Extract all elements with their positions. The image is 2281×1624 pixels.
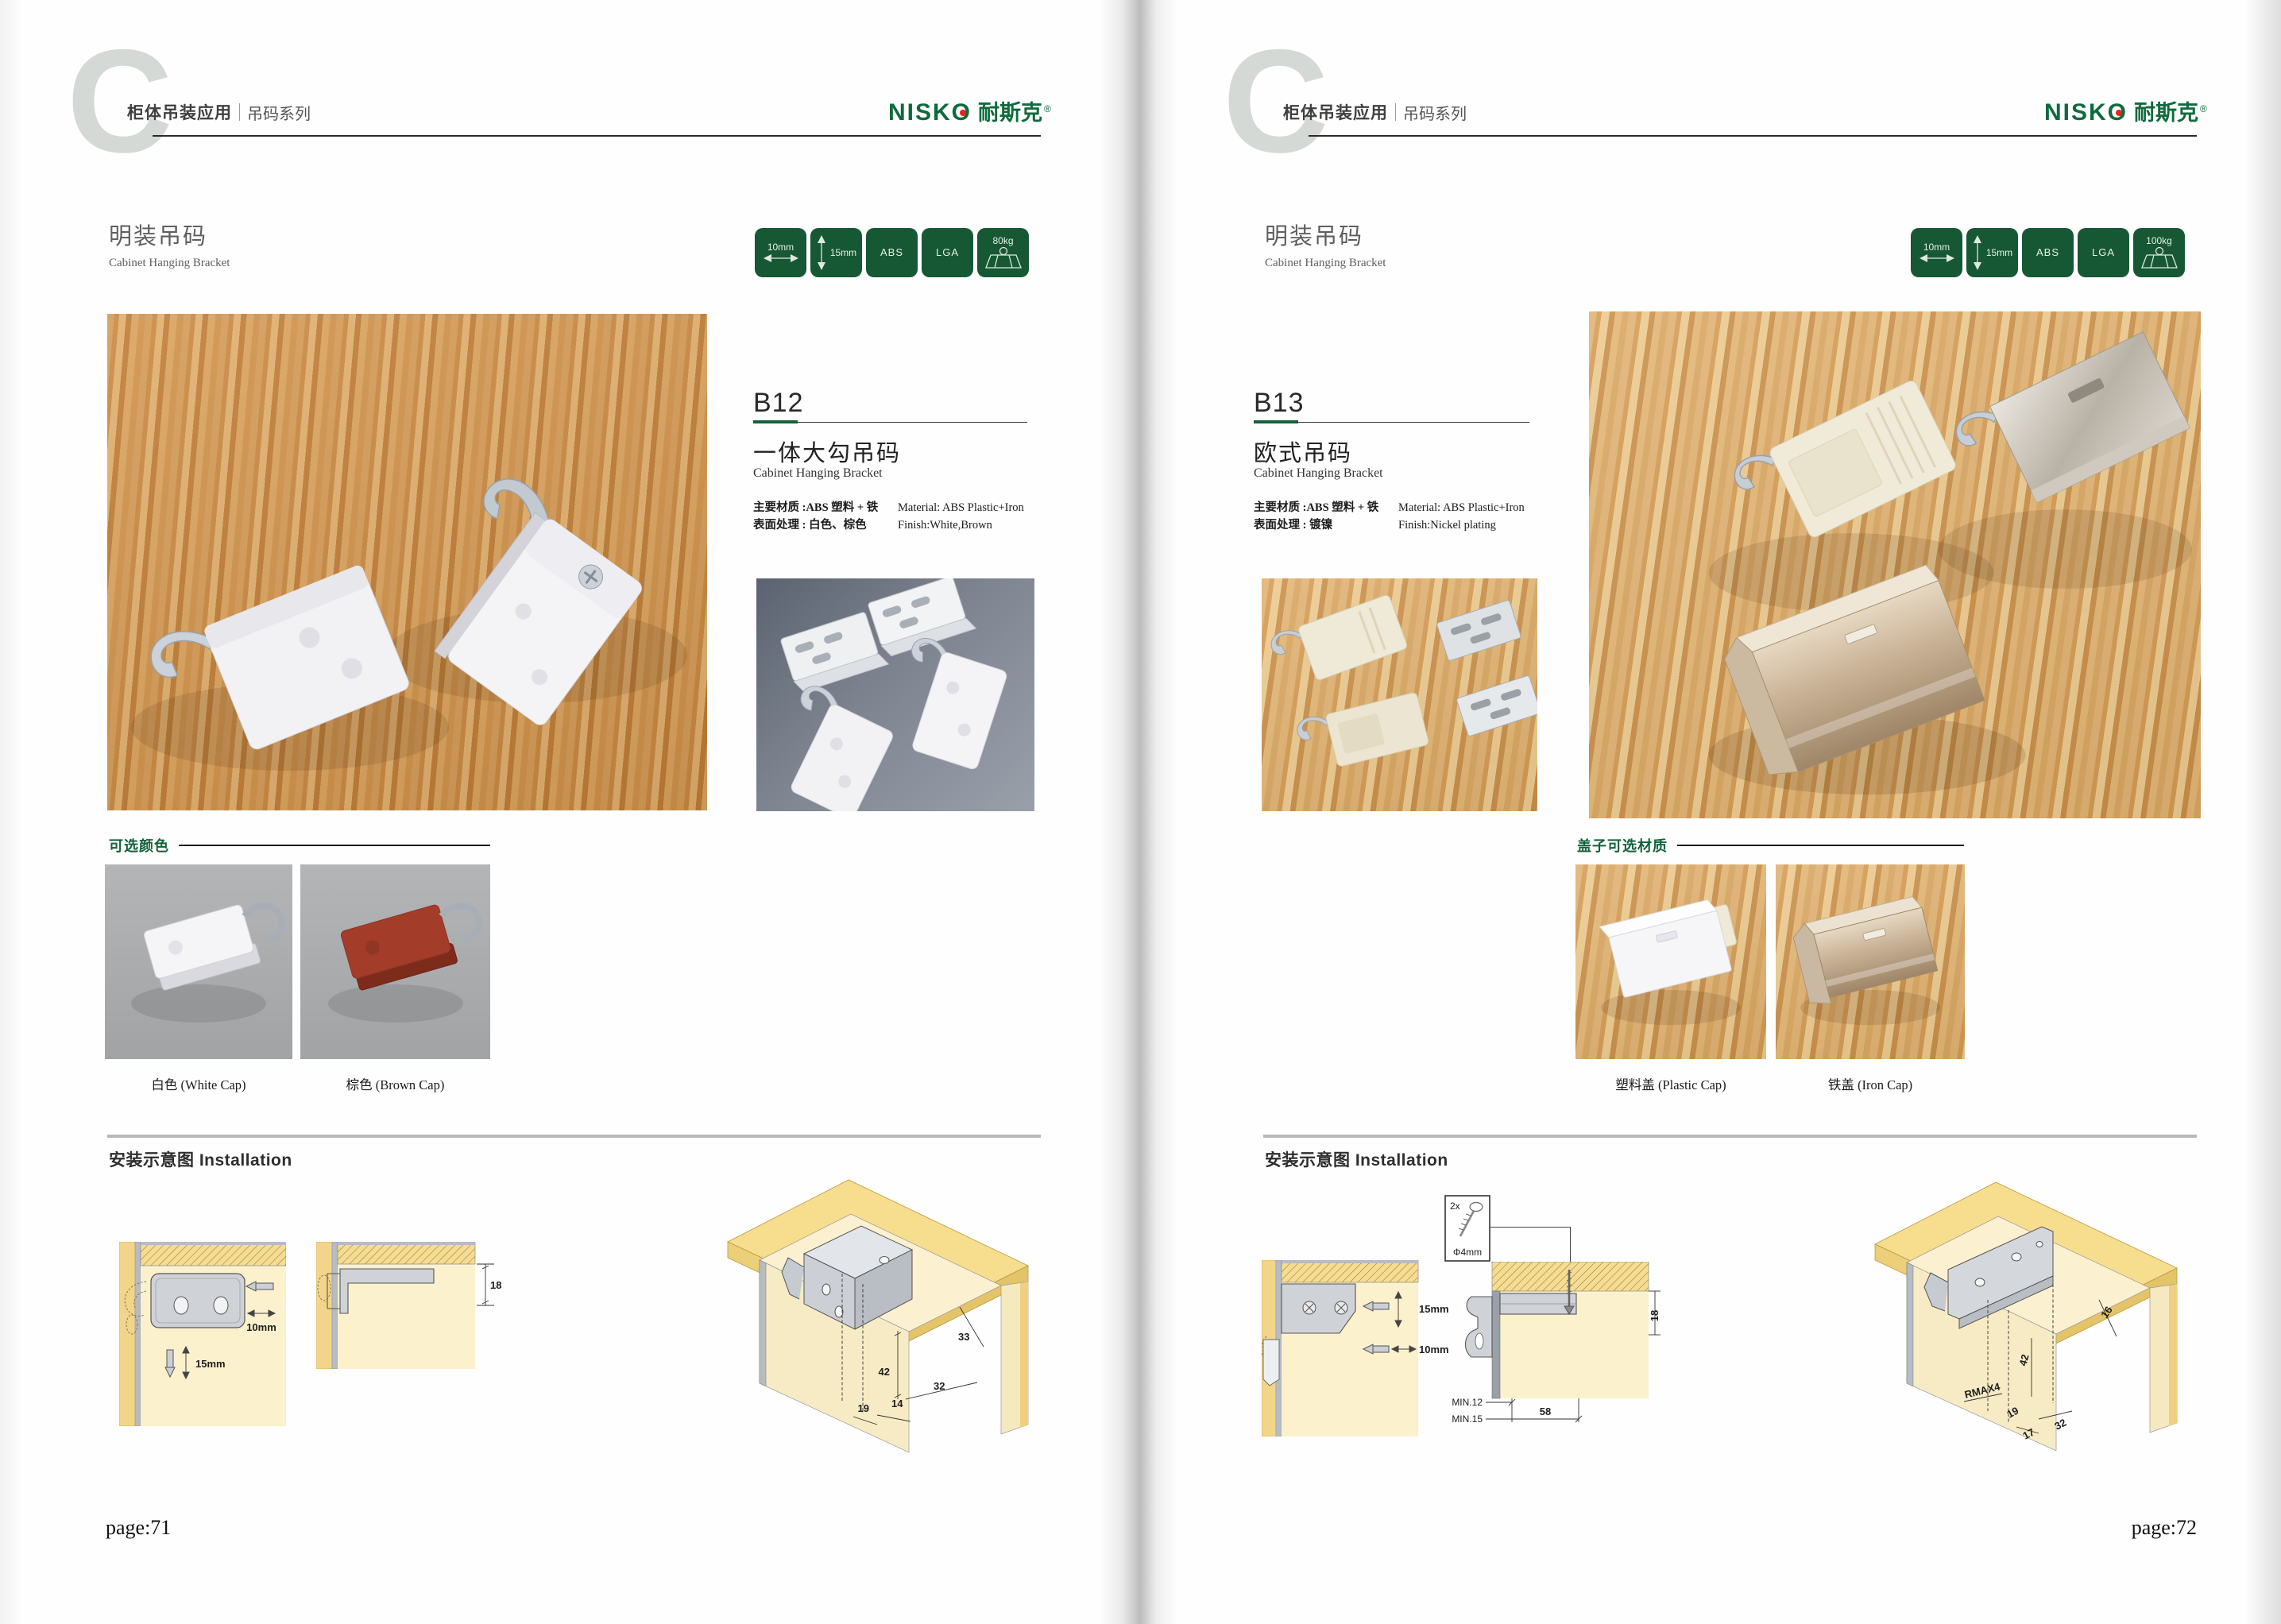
spec-material-en: Material: ABS Plastic+Iron <box>898 499 1041 516</box>
product-code: B12 <box>753 388 804 419</box>
height-arrow-icon <box>816 234 827 271</box>
width-arrow-icon <box>1919 253 1955 264</box>
option-caption: 塑料盖 (Plastic Cap) <box>1575 1074 1766 1093</box>
material-option-photo-plastic <box>1575 864 1766 1059</box>
bracket-illustration <box>1589 311 2201 818</box>
height-arrow-icon <box>1972 234 1983 271</box>
svg-text:18: 18 <box>1649 1310 1660 1321</box>
options-rule <box>1677 845 1964 846</box>
option-caption: 棕色 (Brown Cap) <box>300 1074 490 1093</box>
svg-text:42: 42 <box>879 1366 890 1378</box>
section-title-cn: 明装吊码 <box>109 218 230 251</box>
install-diagram-perspective: 42 33 32 14 19 <box>721 1178 1031 1462</box>
color-option-photo-brown <box>300 864 490 1059</box>
options-label: 盖子可选材质 <box>1577 835 1668 856</box>
badge-width: 10mm <box>755 228 806 277</box>
brand-logo-cn: 耐斯克 <box>2134 95 2198 126</box>
color-option-photo-white <box>105 864 292 1059</box>
header-title: 柜体吊装应用 <box>127 100 232 124</box>
options-rule <box>179 845 490 846</box>
product-photo-detail <box>1262 578 1537 811</box>
svg-text:MIN.15: MIN.15 <box>1452 1413 1483 1425</box>
options-label: 可选颜色 <box>109 835 169 856</box>
brand-logo-en: NISKO <box>888 99 972 126</box>
registered-mark: ® <box>1044 103 1051 114</box>
page-header: 柜体吊装应用 吊码系列 <box>127 102 311 122</box>
spec-badges: 10mm 15mm ABS LGA 100kg <box>1911 228 2185 277</box>
page-edge-shadow <box>2245 0 2281 1624</box>
svg-text:MIN.12: MIN.12 <box>1452 1397 1483 1408</box>
header-rule <box>153 135 1041 137</box>
page-number: page:71 <box>106 1516 171 1540</box>
product-name-cn: 欧式吊码 <box>1254 435 1352 468</box>
badge-height: 15mm <box>810 228 862 277</box>
product-code-accent <box>753 420 798 423</box>
install-diagram-front: 10mm 15mm <box>119 1242 286 1430</box>
option-caption: 白色 (White Cap) <box>105 1074 292 1093</box>
svg-text:15mm: 15mm <box>195 1358 226 1370</box>
svg-text:2x: 2x <box>1450 1201 1460 1212</box>
header-divider <box>1395 103 1396 121</box>
installation-label: 安装示意图 Installation <box>1265 1147 1448 1171</box>
svg-text:18: 18 <box>490 1279 501 1291</box>
spec-finish-cn: 表面处理 : 镀镍 <box>1254 516 1398 534</box>
material-option-photo-iron <box>1776 864 1965 1059</box>
badge-load: 100kg <box>2133 228 2185 277</box>
product-photo-detail <box>756 578 1034 811</box>
section-title-cn: 明装吊码 <box>1265 218 1386 251</box>
badge-load: 80kg <box>977 228 1029 277</box>
screw-spec-box: 2x Φ4mm <box>1444 1195 1490 1266</box>
product-name-en: Cabinet Hanging Bracket <box>753 466 883 481</box>
brand-logo: NISKO 耐斯克 ® <box>2044 95 2207 126</box>
book-fold-shadow <box>1099 0 1178 1624</box>
svg-text:14: 14 <box>891 1398 903 1409</box>
header-rule <box>1309 135 2197 137</box>
badge-lga: LGA <box>922 228 973 277</box>
badge-material: ABS <box>2022 228 2074 277</box>
install-diagram-side: 18 MIN.12 MIN.15 58 <box>1422 1262 1664 1434</box>
installation-rule <box>107 1135 1041 1138</box>
product-photo-main <box>107 314 707 810</box>
badge-material: ABS <box>866 228 918 277</box>
page-header: 柜体吊装应用 吊码系列 <box>1283 102 1467 122</box>
badge-width: 10mm <box>1911 228 1962 277</box>
options-header: 可选颜色 <box>109 835 490 856</box>
svg-text:Φ4mm: Φ4mm <box>1453 1247 1482 1258</box>
bracket-illustration <box>107 314 707 810</box>
bracket-parts-illustration <box>756 578 1034 811</box>
product-name-cn: 一体大勾吊码 <box>753 435 901 468</box>
width-arrow-icon <box>763 253 799 264</box>
installation-rule <box>1263 1135 2197 1138</box>
svg-text:19: 19 <box>858 1402 869 1414</box>
options-header: 盖子可选材质 <box>1577 835 1964 856</box>
page-edge-shadow <box>0 0 22 1624</box>
header-series: 吊码系列 <box>247 101 311 124</box>
brand-logo-en: NISKO <box>2044 99 2128 126</box>
header-series: 吊码系列 <box>1403 101 1467 124</box>
spec-material-en: Material: ABS Plastic+Iron <box>1398 499 1548 516</box>
bracket-parts-illustration <box>1262 578 1537 811</box>
spec-finish-en: Finish:White,Brown <box>898 516 1041 534</box>
section-title: 明装吊码 Cabinet Hanging Bracket <box>1265 218 1386 270</box>
header-title: 柜体吊装应用 <box>1283 100 1388 124</box>
load-icon <box>985 246 1022 270</box>
svg-text:32: 32 <box>934 1380 945 1392</box>
section-title-en: Cabinet Hanging Bracket <box>109 257 230 270</box>
badge-lga: LGA <box>2078 228 2129 277</box>
product-code-accent <box>1254 420 1298 423</box>
install-diagram-perspective: 16 42 RMAX4 19 17 32 <box>1869 1181 2180 1459</box>
section-title: 明装吊码 Cabinet Hanging Bracket <box>109 218 230 270</box>
svg-text:58: 58 <box>1540 1406 1551 1417</box>
option-caption: 铁盖 (Iron Cap) <box>1776 1074 1965 1093</box>
svg-text:10mm: 10mm <box>246 1321 276 1333</box>
registered-mark: ® <box>2200 103 2207 114</box>
product-photo-main <box>1589 311 2201 818</box>
install-diagram-side: 18 <box>316 1242 503 1373</box>
spec-finish-en: Finish:Nickel plating <box>1398 516 1548 534</box>
brand-logo: NISKO 耐斯克 ® <box>888 95 1051 126</box>
installation-label: 安装示意图 Installation <box>109 1147 292 1171</box>
spec-material-cn: 主要材质 :ABS 塑料 + 铁 <box>753 499 898 516</box>
product-name-en: Cabinet Hanging Bracket <box>1254 466 1383 481</box>
header-divider <box>239 103 240 121</box>
brand-logo-cn: 耐斯克 <box>978 95 1042 126</box>
section-title-en: Cabinet Hanging Bracket <box>1265 257 1386 270</box>
badge-height: 15mm <box>1966 228 2018 277</box>
load-icon <box>2141 246 2178 270</box>
product-specs: 主要材质 :ABS 塑料 + 铁 Material: ABS Plastic+I… <box>1254 499 1548 534</box>
product-specs: 主要材质 :ABS 塑料 + 铁 Material: ABS Plastic+I… <box>753 499 1041 534</box>
spec-badges: 10mm 15mm ABS LGA 80kg <box>755 228 1029 277</box>
spec-finish-cn: 表面处理 : 白色、棕色 <box>753 516 898 534</box>
spec-material-cn: 主要材质 :ABS 塑料 + 铁 <box>1254 499 1398 516</box>
catalog-spread: C 柜体吊装应用 吊码系列 NISKO 耐斯克 ® 明装吊码 Cabinet H… <box>0 0 2281 1624</box>
page-number: page:72 <box>2018 1516 2197 1540</box>
svg-text:33: 33 <box>958 1331 969 1343</box>
product-code: B13 <box>1254 388 1305 419</box>
